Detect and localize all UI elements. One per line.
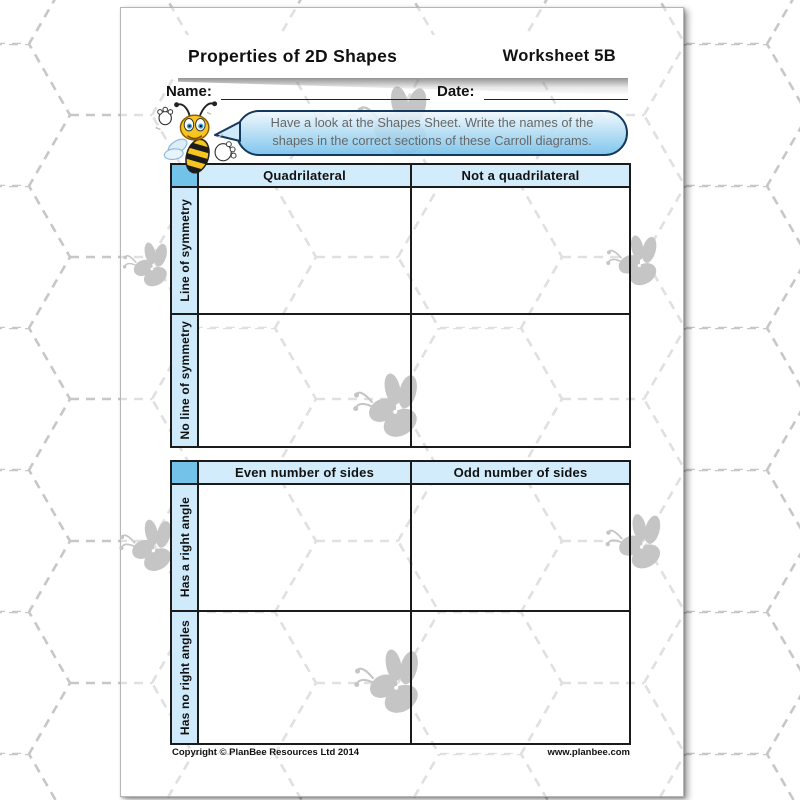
diagram-cell [412, 188, 629, 315]
bee-mascot-icon [150, 97, 245, 179]
copyright-text: Copyright © PlanBee Resources Ltd 2014 [172, 747, 359, 758]
worksheet-number: Worksheet 5B [503, 47, 616, 66]
column-header: Not a quadrilateral [412, 165, 629, 188]
diagram-cell [199, 188, 412, 315]
speech-bubble: Have a look at the Shapes Sheet. Write t… [236, 110, 628, 156]
row-header: Has no right angles [172, 612, 199, 743]
diagram-cell [412, 485, 629, 612]
diagram-cell [199, 315, 412, 446]
title-bar: Properties of 2D Shapes Worksheet 5B [172, 35, 628, 78]
column-header: Odd number of sides [412, 462, 629, 485]
worksheet-canvas: Quadrilateral Not a quadrilateral Line o… [0, 0, 800, 800]
date-line [484, 85, 628, 100]
row-header: No line of symmetry [172, 315, 199, 446]
diagram-cell [199, 485, 412, 612]
website-text: www.planbee.com [450, 747, 630, 758]
corner-cell [172, 462, 199, 485]
speech-bubble-text: Have a look at the Shapes Sheet. Write t… [256, 114, 608, 150]
page-title: Properties of 2D Shapes [188, 46, 397, 67]
diagram-cell [412, 612, 629, 743]
name-line [221, 85, 430, 100]
diagram-cell [199, 612, 412, 743]
row-header: Has a right angle [172, 485, 199, 612]
date-label: Date: [437, 83, 475, 100]
carroll-diagram-sides: Even number of sides Odd number of sides… [170, 460, 631, 745]
diagram-cell [412, 315, 629, 446]
column-header: Even number of sides [199, 462, 412, 485]
row-header: Line of symmetry [172, 188, 199, 315]
carroll-diagram-quadrilateral: Quadrilateral Not a quadrilateral Line o… [170, 163, 631, 448]
